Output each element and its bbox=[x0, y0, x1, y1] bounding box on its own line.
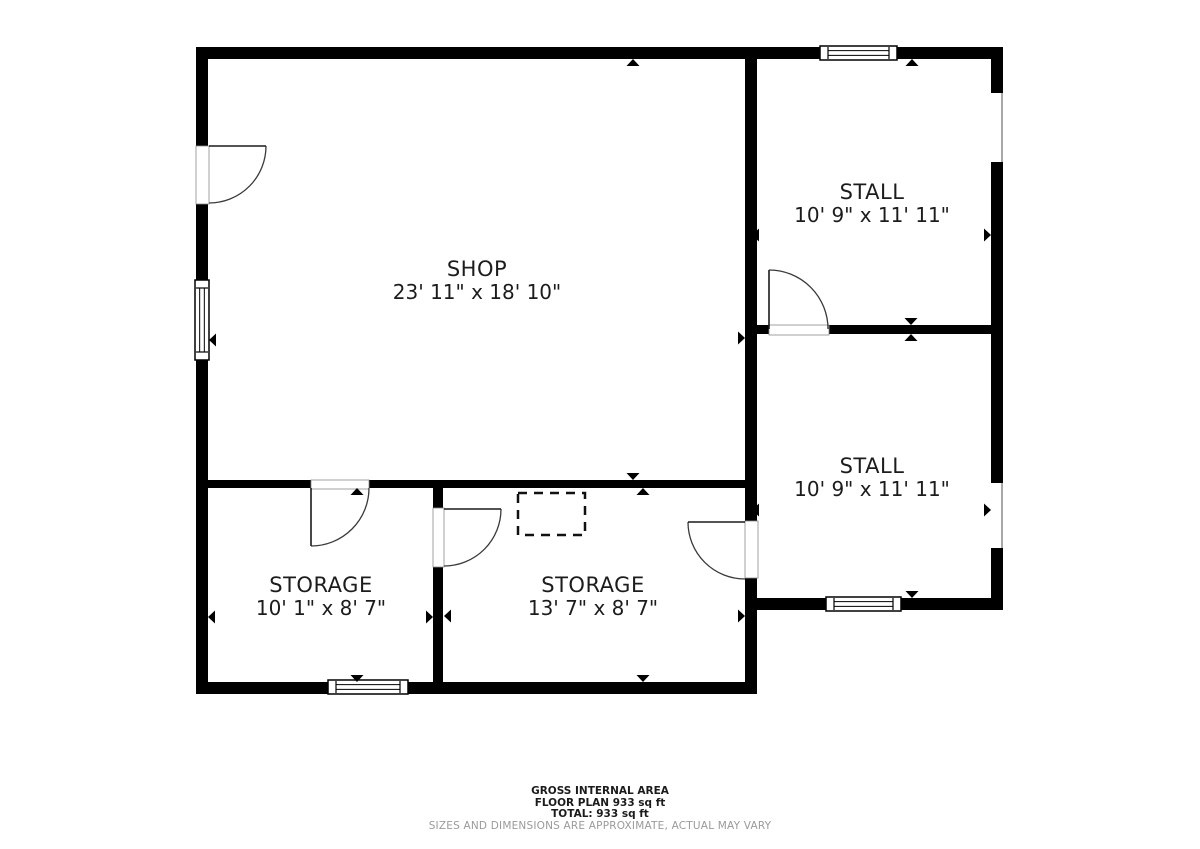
dimension-arrow-storage-2-up bbox=[637, 488, 650, 495]
window-stall1-top bbox=[820, 46, 897, 60]
opening-stall1-right-wall bbox=[991, 93, 1003, 162]
opening-stall2-right-wall bbox=[991, 483, 1003, 548]
dimension-arrow-shop-left bbox=[209, 334, 216, 347]
wall-shop-storage bbox=[208, 480, 745, 488]
door-storage1-opening bbox=[311, 480, 369, 489]
dimension-arrow-storage-2-down bbox=[637, 675, 650, 682]
window-storage1-bottom bbox=[328, 680, 408, 694]
dimension-arrow-shop-down bbox=[627, 473, 640, 480]
exterior-wall-bottom bbox=[196, 682, 757, 694]
door-storage1-storage2-opening bbox=[433, 508, 444, 567]
door-storage1-storage2-swing-arc bbox=[444, 509, 501, 566]
dimension-arrow-stall-1-up bbox=[906, 59, 919, 66]
floor-plan-page: SHOP 23' 11" x 18' 10" STALL 10' 9" x 11… bbox=[0, 0, 1200, 849]
dimension-arrow-storage-1-left bbox=[208, 611, 215, 624]
dimension-arrow-stall-1-down bbox=[905, 318, 918, 325]
dimension-arrow-shop-right bbox=[738, 332, 745, 345]
dimension-arrow-stall-2-right bbox=[984, 504, 991, 517]
dimension-arrow-stall-2-up bbox=[905, 334, 918, 341]
window-stall2-bottom bbox=[826, 597, 901, 611]
door-storage2-stall2-swing-arc bbox=[688, 522, 745, 579]
wall-center-vertical bbox=[745, 47, 757, 694]
door-stall1-stall2-swing-arc bbox=[769, 270, 828, 329]
floor-plan-drawing bbox=[0, 0, 1200, 849]
dimension-arrow-stall-1-right bbox=[984, 229, 991, 242]
dashed-fixture-box bbox=[518, 493, 585, 535]
gross-internal-area-label: GROSS INTERNAL AREA bbox=[0, 786, 1200, 798]
disclaimer-text: SIZES AND DIMENSIONS ARE APPROXIMATE, AC… bbox=[0, 821, 1200, 833]
dimension-arrow-storage-2-right bbox=[738, 610, 745, 623]
door-storage1-swing-arc bbox=[311, 488, 369, 546]
door-stall1-stall2-opening bbox=[769, 325, 829, 335]
door-storage2-stall2-opening bbox=[745, 521, 758, 578]
door-shop-entry-swing-arc bbox=[209, 146, 266, 203]
window-shop-left bbox=[195, 280, 209, 360]
dimension-arrow-stall-2-down bbox=[906, 591, 919, 598]
plan-summary: GROSS INTERNAL AREA FLOOR PLAN 933 sq ft… bbox=[0, 786, 1200, 832]
dimension-arrow-shop-up bbox=[627, 59, 640, 66]
door-shop-entry-opening bbox=[196, 146, 209, 204]
exterior-wall-left bbox=[196, 47, 208, 694]
dimension-arrow-storage-1-right bbox=[426, 611, 433, 624]
dimension-arrow-storage-2-left bbox=[444, 610, 451, 623]
